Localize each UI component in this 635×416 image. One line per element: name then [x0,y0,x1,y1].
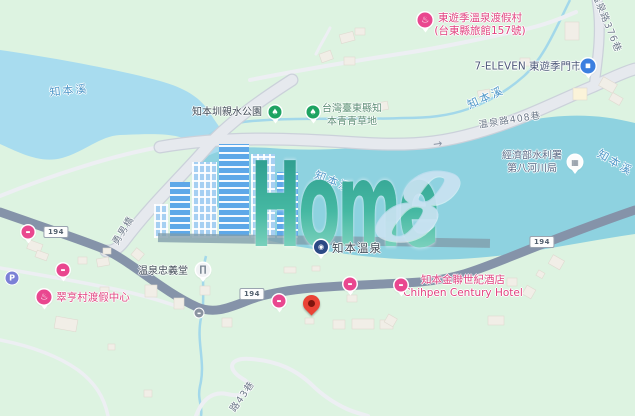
park-label-green-grass[interactable]: 台灣臺東縣知本青青草地 [322,104,382,129]
lodging-icon[interactable]: ▬ [273,295,286,308]
poi-label-zhiben-hotspring[interactable]: 知本溫泉 [332,241,382,255]
route-194-badge-left: 194 [43,226,68,238]
lodging-icon[interactable]: ▬ [344,278,357,291]
hot-spring-icon[interactable]: ♨ [418,13,433,28]
lodging-icon[interactable]: ▬ [57,264,70,277]
attraction-icon[interactable]: ◉ [314,240,328,254]
tree-icon[interactable]: ♠ [269,106,282,119]
gov-label-water-agency[interactable]: 經濟部水利署第八河川局 [502,151,562,176]
store-label-7eleven[interactable]: 7-ELEVEN 東遊季門市 [474,60,581,73]
bus-stop-icon[interactable]: ▬ [195,309,204,318]
lodging-icon[interactable]: ▬ [395,279,408,292]
hotel-label-century[interactable]: 知本金聯世紀酒店Chihpen Century Hotel [403,274,523,300]
oneway-arrow-icon: → [432,137,443,151]
tree-icon[interactable]: ♠ [307,106,320,119]
resort-label-cuiheng[interactable]: 翠亨村渡假中心 [56,291,130,304]
government-office-icon[interactable]: ▦ [568,155,582,169]
resort-label-toyugi[interactable]: 東遊季溫泉渡假村(台東縣旅館157號) [434,12,525,38]
temple-label-zhongyi[interactable]: 温泉忠義堂 [138,266,188,279]
route-194-badge-center: 194 [239,288,264,300]
lodging-icon[interactable]: ▬ [22,226,35,239]
convenience-store-icon[interactable]: ■ [581,59,596,74]
park-label-qinshui[interactable]: 知本圳親水公園 [192,107,262,120]
hot-spring-icon[interactable]: ♨ [37,290,52,305]
temple-icon[interactable]: ∏ [196,263,210,277]
map-canvas[interactable]: → Home 8 知本溪知本圳親水公園台灣臺東縣知本青青草地東遊季溫泉渡假村(台… [0,0,635,416]
route-194-badge-right: 194 [529,236,554,248]
parking-icon[interactable]: P [6,272,19,285]
